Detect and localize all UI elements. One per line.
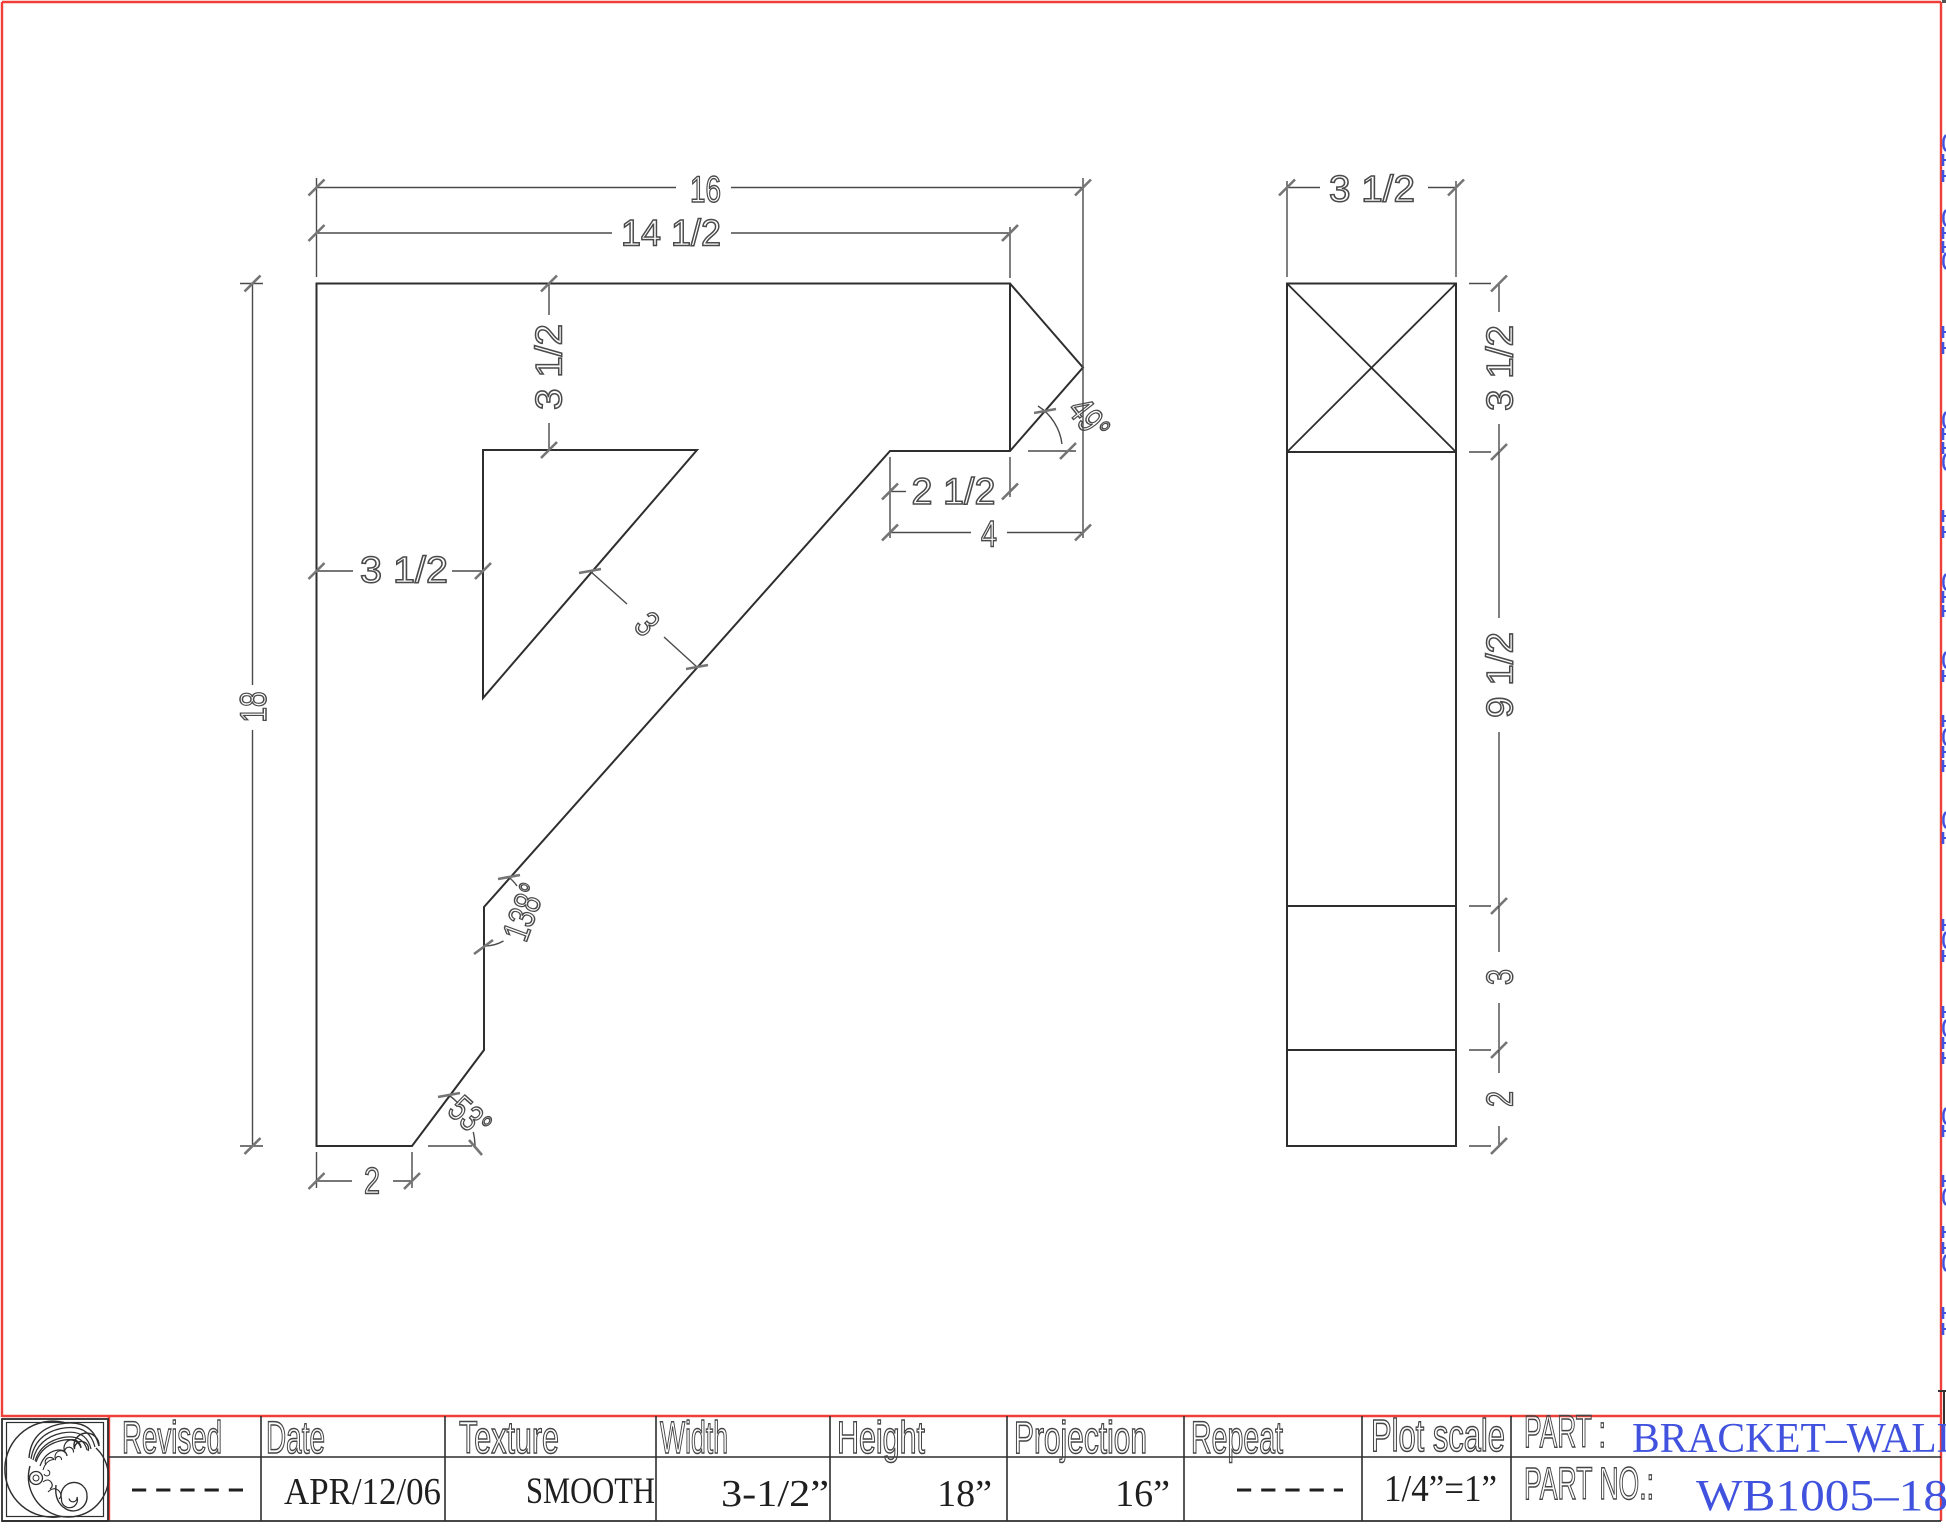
svg-text:3 1/2: 3 1/2: [1480, 325, 1521, 411]
svg-text:14 1/2: 14 1/2: [621, 213, 721, 254]
svg-text:2: 2: [1480, 1091, 1521, 1107]
svg-text:Revised: Revised: [122, 1412, 222, 1463]
svg-text:18”: 18”: [937, 1473, 992, 1515]
svg-text:3 1/2: 3 1/2: [360, 550, 448, 591]
svg-text:3 1/2: 3 1/2: [1329, 169, 1415, 210]
svg-text:1/4”=1”: 1/4”=1”: [1384, 1468, 1497, 1510]
svg-text:Height: Height: [837, 1412, 925, 1463]
svg-text:138°: 138°: [495, 878, 553, 947]
svg-text:3 1/2: 3 1/2: [529, 324, 570, 410]
svg-text:PART NO.:: PART NO.:: [1524, 1458, 1654, 1509]
svg-text:3: 3: [1480, 969, 1521, 985]
svg-text:4: 4: [981, 514, 997, 555]
svg-text:3-1/2”: 3-1/2”: [721, 1473, 829, 1515]
svg-text:9 1/2: 9 1/2: [1480, 632, 1521, 718]
svg-text:SMOOTH: SMOOTH: [526, 1471, 655, 1512]
svg-text:BRACKET–WALL: BRACKET–WALL: [1632, 1416, 1946, 1462]
svg-text:3: 3: [627, 604, 668, 644]
svg-text:WB1005–18: WB1005–18: [1696, 1471, 1946, 1520]
svg-text:Texture: Texture: [459, 1412, 559, 1463]
svg-text:16”: 16”: [1115, 1473, 1170, 1515]
svg-text:18: 18: [233, 692, 274, 723]
svg-text:Repeat: Repeat: [1191, 1412, 1283, 1463]
svg-text:Projection: Projection: [1014, 1412, 1147, 1463]
svg-text:Plot scale: Plot scale: [1371, 1410, 1505, 1461]
svg-text:PART :: PART :: [1524, 1406, 1606, 1457]
svg-text:16: 16: [690, 169, 721, 210]
svg-text:Width: Width: [660, 1412, 728, 1463]
svg-text:2 1/2: 2 1/2: [912, 471, 996, 512]
svg-text:APR/12/06: APR/12/06: [284, 1471, 441, 1513]
svg-text:2: 2: [364, 1161, 380, 1202]
svg-text:49°: 49°: [1060, 390, 1118, 448]
svg-text:Date: Date: [266, 1412, 325, 1463]
